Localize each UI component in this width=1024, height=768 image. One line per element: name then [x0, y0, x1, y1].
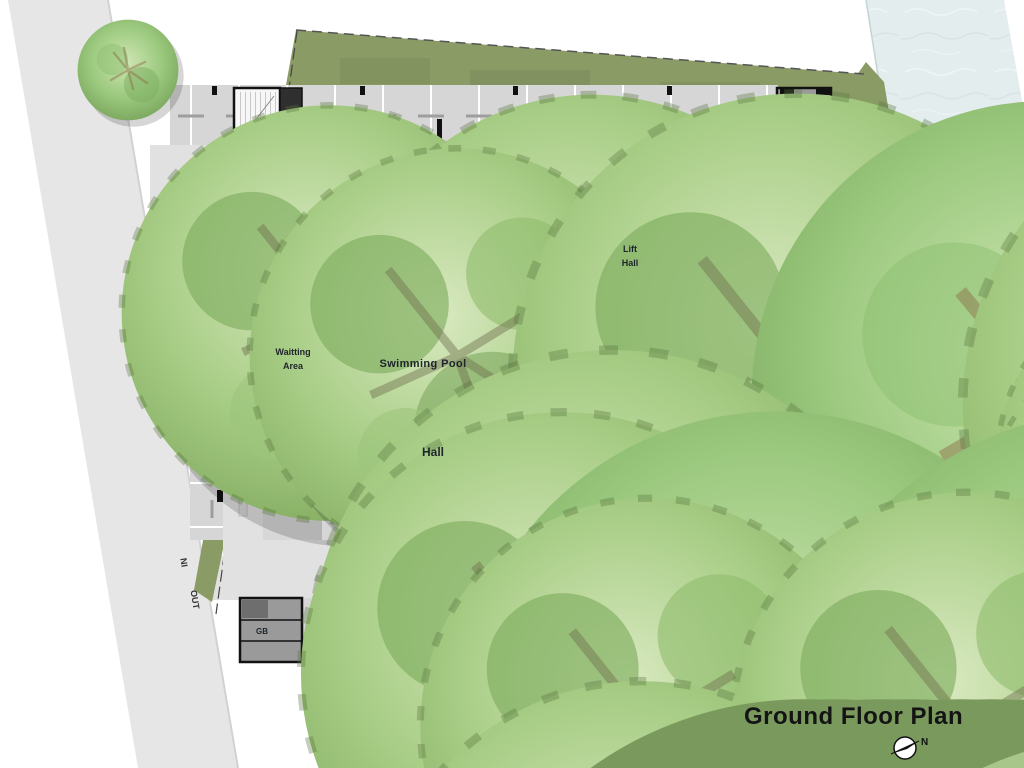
hall-label: Hall	[422, 445, 444, 459]
traffic-in-label: IN	[178, 557, 189, 567]
north-label: N	[921, 737, 928, 748]
plan-title: Ground Floor Plan	[744, 703, 963, 730]
lift-hall-label-1: Lift	[623, 244, 637, 254]
room-gb: GB	[240, 598, 302, 662]
waiting-area-label-2: Area	[283, 361, 304, 371]
lift-hall-label-2: Hall	[622, 258, 639, 268]
swimming-pool-label: Swimming Pool	[379, 358, 466, 370]
floor-plan-canvas: FHC MDB Pump Room GB	[0, 0, 1024, 768]
waiting-area-label-1: Waitting	[275, 347, 310, 357]
gb-label: GB	[256, 627, 268, 636]
floor-plan-drawing: FHC MDB Pump Room GB	[0, 0, 1024, 768]
